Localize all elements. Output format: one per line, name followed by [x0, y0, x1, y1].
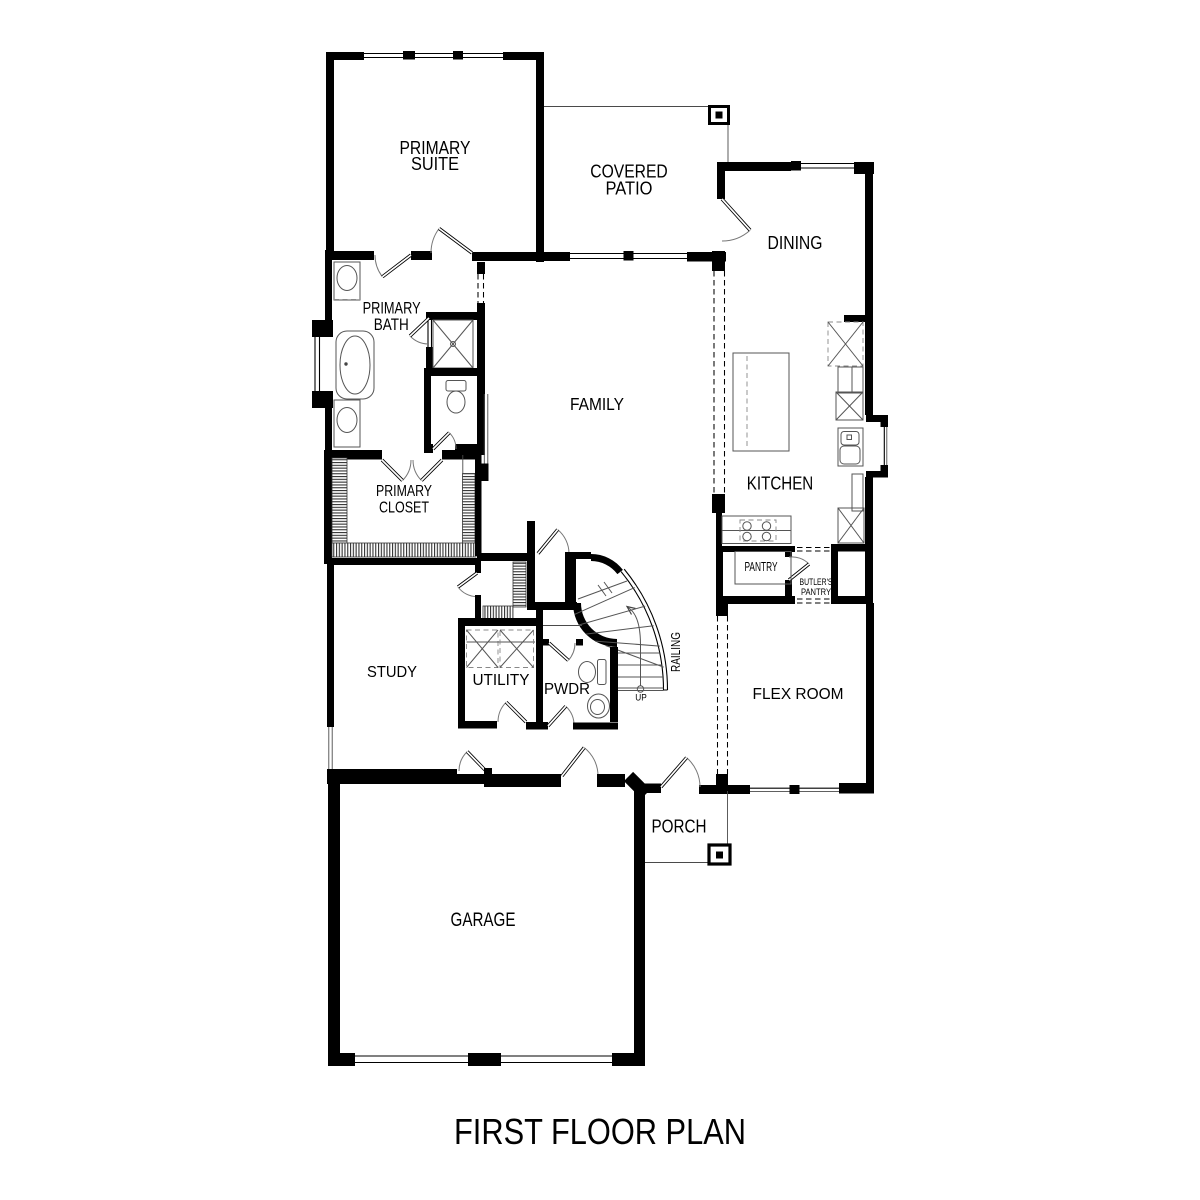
- svg-text:UTILITY: UTILITY: [473, 672, 530, 689]
- svg-text:PORCH: PORCH: [652, 816, 707, 837]
- svg-text:KITCHEN: KITCHEN: [747, 474, 814, 494]
- svg-text:PWDR: PWDR: [544, 681, 590, 698]
- svg-text:PATIO: PATIO: [606, 178, 653, 199]
- svg-text:PANTRY: PANTRY: [745, 559, 778, 574]
- svg-text:FAMILY: FAMILY: [570, 394, 624, 414]
- svg-text:GARAGE: GARAGE: [451, 909, 516, 931]
- svg-text:CLOSET: CLOSET: [379, 500, 429, 517]
- svg-text:SUITE: SUITE: [411, 153, 459, 174]
- svg-text:STUDY: STUDY: [367, 664, 417, 681]
- svg-text:DINING: DINING: [768, 233, 823, 253]
- svg-text:BATH: BATH: [374, 315, 409, 334]
- svg-text:PRIMARY: PRIMARY: [376, 483, 432, 500]
- svg-text:RAILING: RAILING: [668, 632, 683, 672]
- svg-text:FIRST FLOOR PLAN: FIRST FLOOR PLAN: [454, 1111, 746, 1152]
- svg-text:UP: UP: [635, 693, 647, 703]
- svg-text:FLEX ROOM: FLEX ROOM: [753, 686, 844, 703]
- svg-text:PANTRY: PANTRY: [801, 587, 832, 598]
